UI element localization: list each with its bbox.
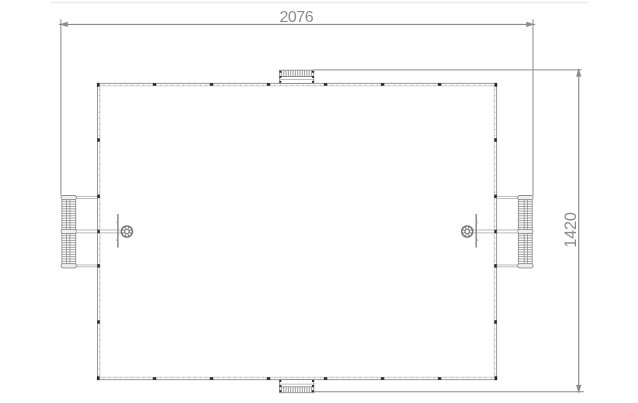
svg-text:2076: 2076 [280,9,314,26]
svg-text:1420: 1420 [562,212,580,248]
